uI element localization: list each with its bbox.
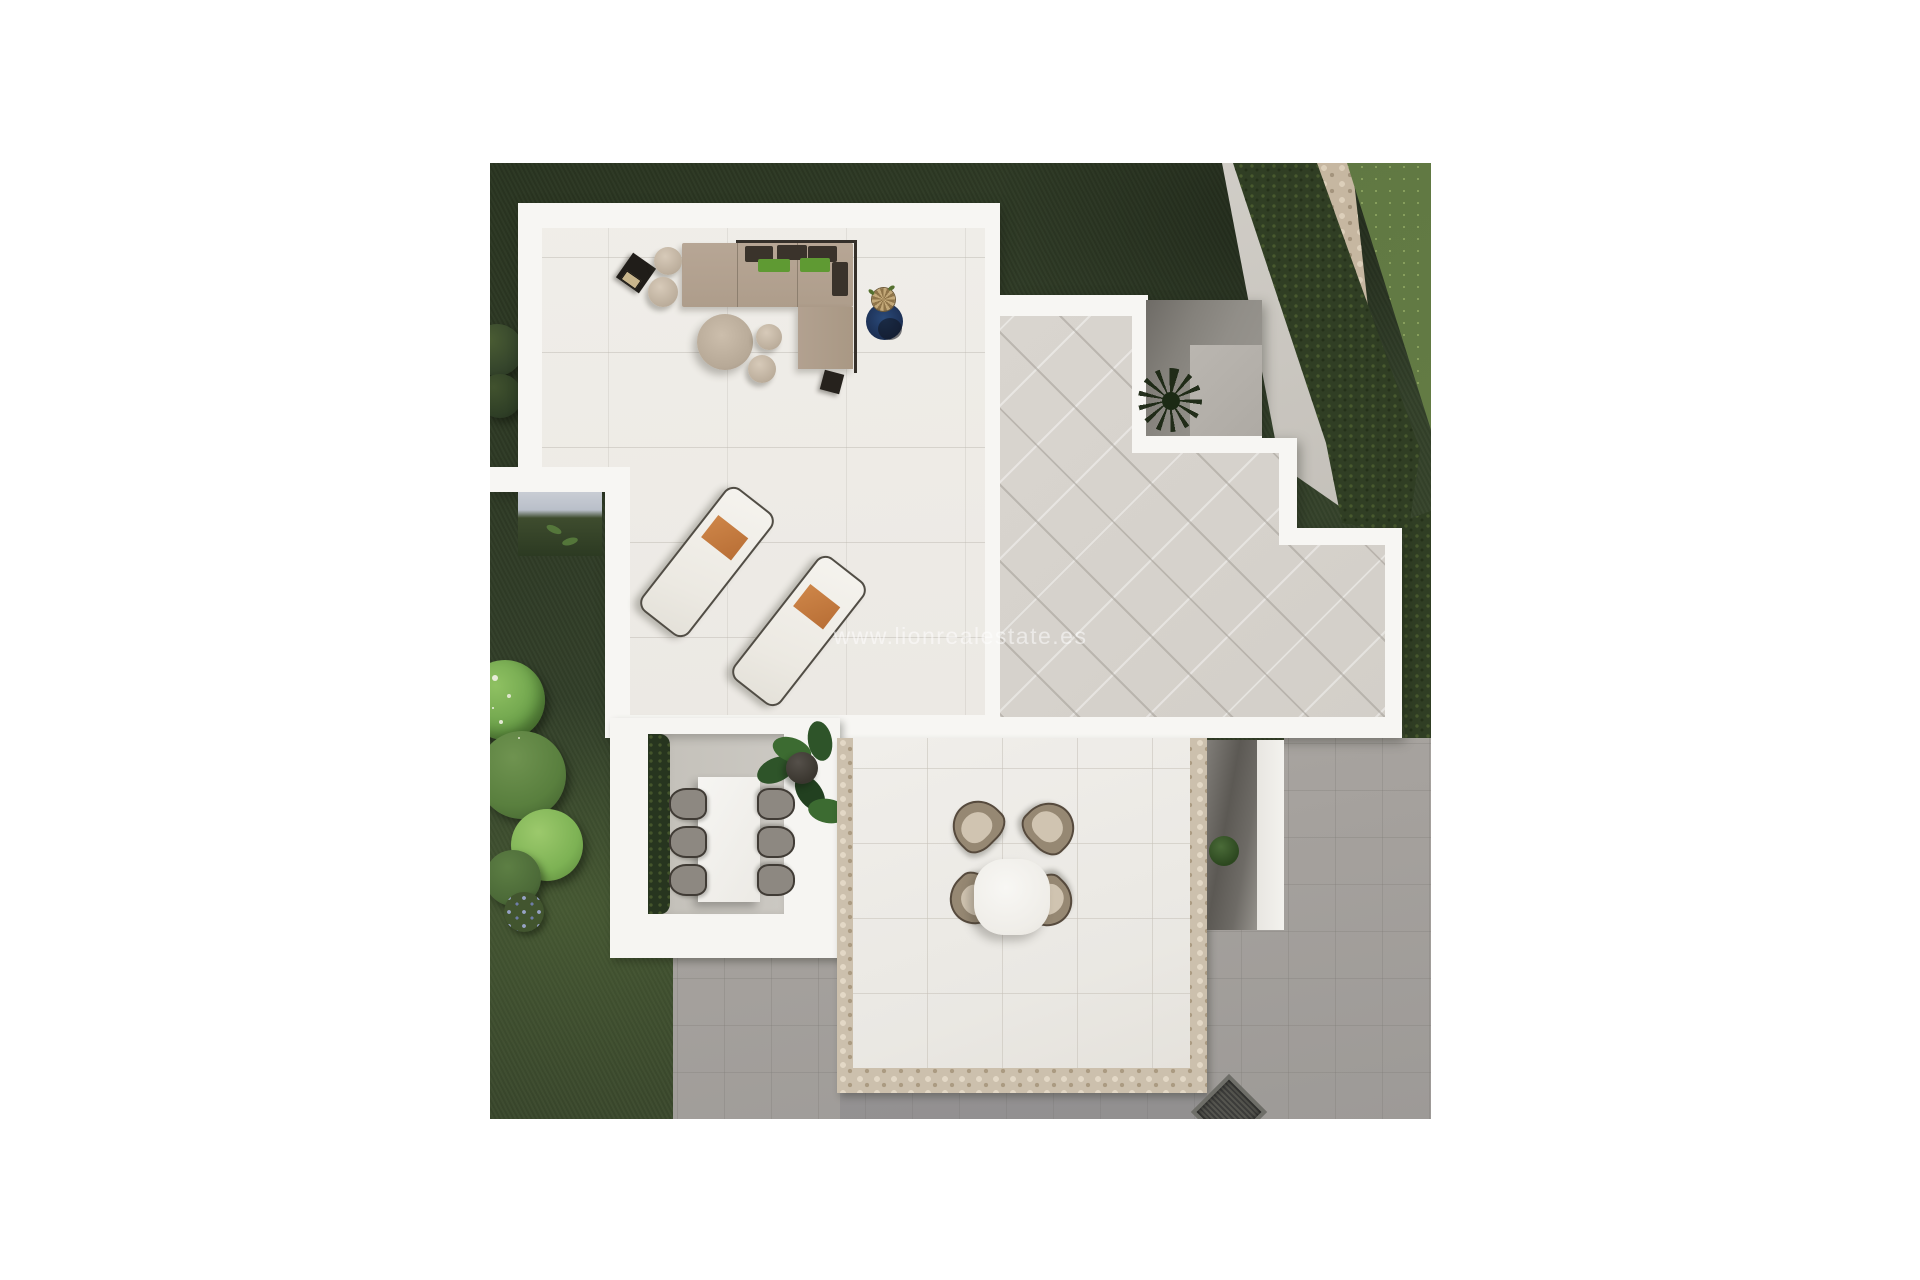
white-wall-band: [1257, 740, 1284, 930]
sunken-courtyard: [1146, 300, 1262, 436]
round-coffee-table: [697, 314, 753, 370]
dining-chair: [757, 788, 795, 820]
stairwell-recess: [1207, 740, 1257, 930]
page-canvas: www.lionrealestate.es: [0, 0, 1920, 1280]
dining-chair: [669, 788, 707, 820]
dining-chair: [669, 864, 707, 896]
pouf: [648, 277, 678, 307]
palm-center: [1162, 392, 1180, 410]
orange-towel: [701, 515, 748, 560]
plant-pot: [786, 752, 818, 784]
corner-planter: [518, 492, 602, 556]
dining-table: [698, 777, 760, 902]
planter-leaf: [545, 523, 562, 536]
dining-chair: [669, 826, 707, 858]
stone-trimmed-terrace: [837, 738, 1207, 1093]
watermark-text: www.lionrealestate.es: [490, 623, 1431, 650]
dining-chair: [757, 826, 795, 858]
pouf: [654, 247, 682, 275]
pouf: [748, 355, 776, 383]
pouf: [756, 324, 782, 350]
sofa-frame: [736, 240, 857, 373]
stairwell-plant: [1209, 836, 1239, 866]
round-table: [974, 859, 1050, 935]
wicker-planter: [872, 288, 895, 311]
chair-seat: [1027, 805, 1069, 847]
dining-hedge-strip: [648, 734, 670, 914]
dining-chair: [757, 864, 795, 896]
plant-shadow: [878, 318, 902, 340]
planter-leaf: [561, 536, 578, 547]
aerial-render-photo: www.lionrealestate.es: [490, 163, 1431, 1119]
chair-seat: [955, 806, 997, 848]
